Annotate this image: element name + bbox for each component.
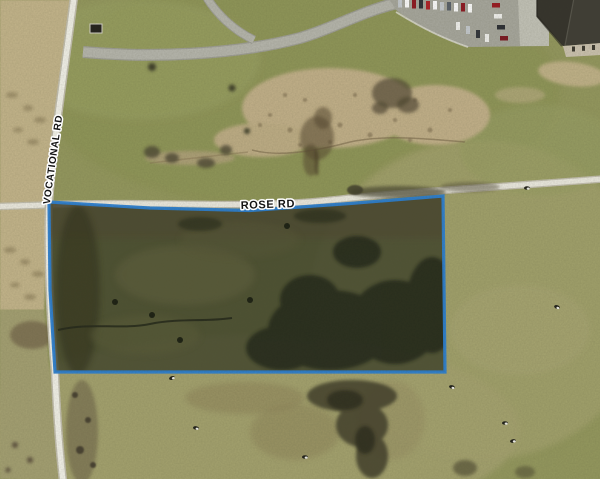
aerial-imagery: ROSE RD VOCATIONAL RD bbox=[0, 0, 600, 479]
imagery-grain bbox=[0, 0, 600, 479]
rose-rd-label: ROSE RD bbox=[241, 198, 296, 212]
map-canvas[interactable]: ROSE RD VOCATIONAL RD bbox=[0, 0, 600, 479]
